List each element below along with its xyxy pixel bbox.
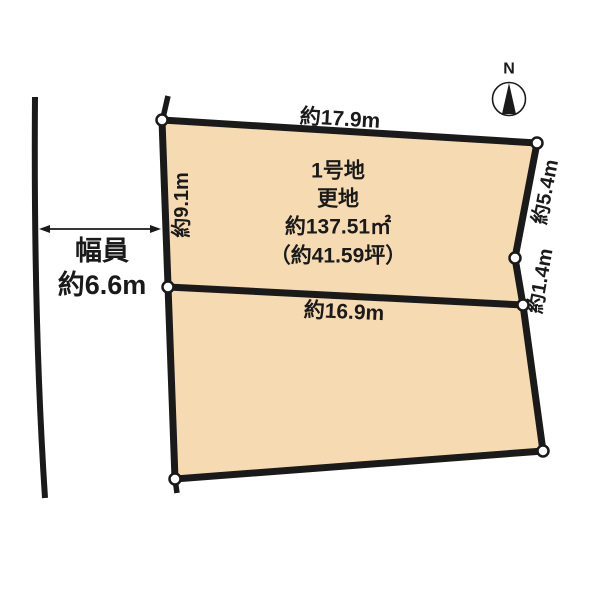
north-letter-label: N <box>503 61 515 78</box>
arrowhead-right-icon <box>150 225 161 233</box>
road-width-arrow <box>39 225 161 233</box>
road-width-label-line2: 約6.6m <box>58 269 147 300</box>
vertex-dot-top-left <box>157 115 168 126</box>
arrowhead-left-icon <box>39 225 50 233</box>
land-plot-diagram: 幅員 約6.6m 1号地 更地 約137.51㎡ （約41.59坪） 約17.9… <box>0 0 600 600</box>
plot-drawing-canvas: 幅員 約6.6m 1号地 更地 約137.51㎡ （約41.59坪） 約17.9… <box>0 0 600 600</box>
vertex-dot-bottom-left <box>170 474 181 485</box>
vertex-dot-right-bend <box>510 253 521 264</box>
lot-condition-label: 更地 <box>317 187 359 211</box>
vertex-dot-top-right <box>532 138 543 149</box>
road-edge-line <box>35 97 45 498</box>
north-compass: N <box>493 61 526 116</box>
lot-area-sqm-label: 約137.51㎡ <box>285 215 391 239</box>
dimension-middle-edge-label: 約16.9m <box>303 298 385 325</box>
road-width-label-line1: 幅員 <box>75 236 129 266</box>
lot-name-label: 1号地 <box>311 159 365 183</box>
vertex-dot-right-divider <box>518 300 529 311</box>
dimension-left-edge-label: 約9.1m <box>169 172 193 238</box>
dimension-top-edge-label: 約17.9m <box>299 104 381 133</box>
vertex-dot-left-divider <box>163 282 174 293</box>
vertex-dot-bottom-right <box>538 446 549 457</box>
lot-area-tsubo-label: （約41.59坪） <box>270 244 407 268</box>
